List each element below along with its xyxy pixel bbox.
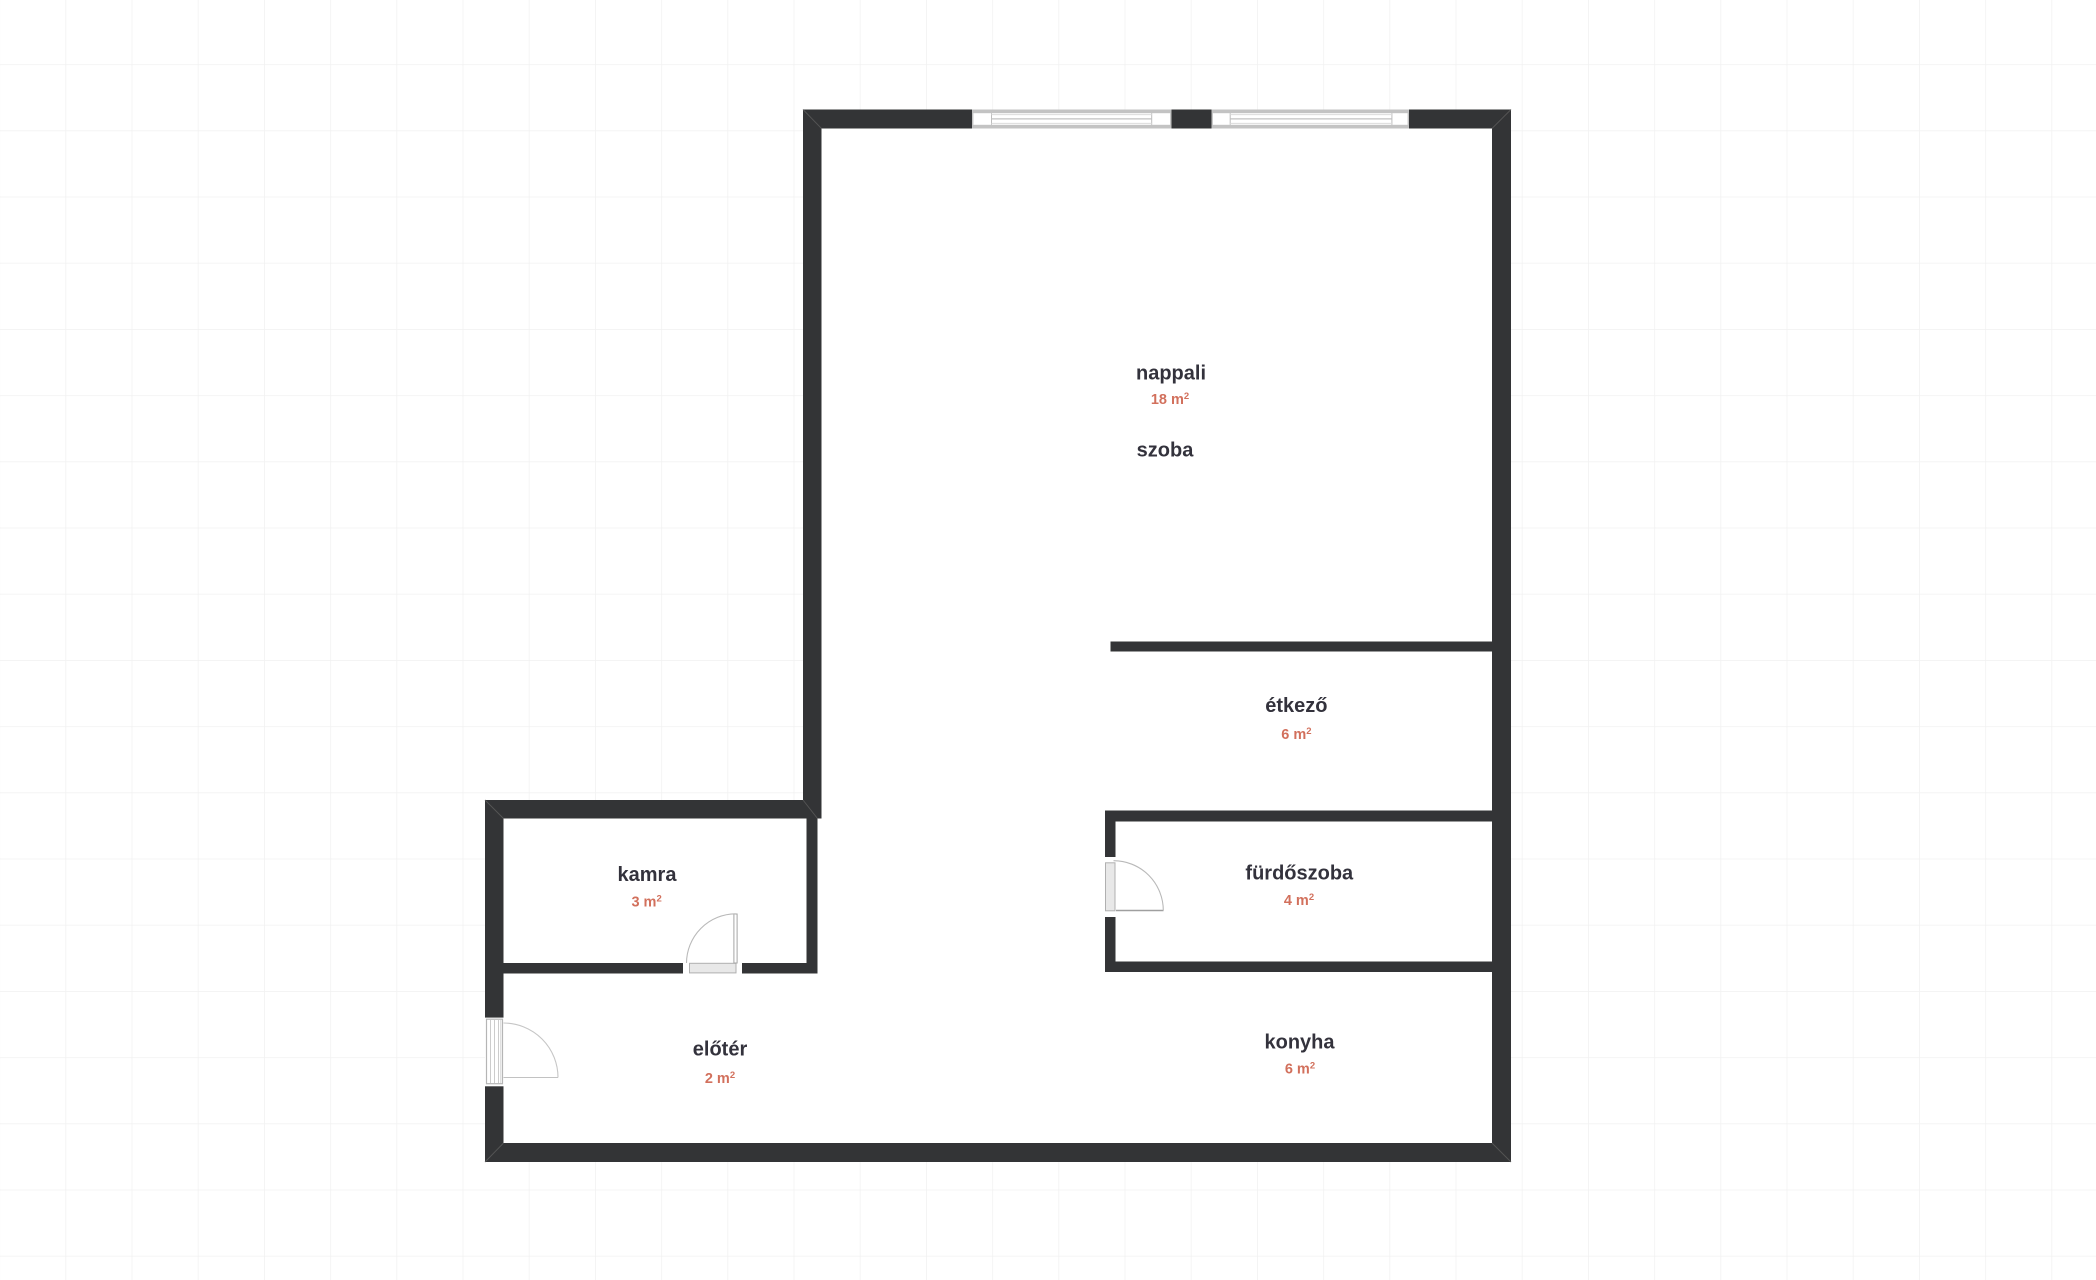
svg-text:konyha: konyha xyxy=(1264,1032,1335,1054)
svg-text:étkező: étkező xyxy=(1265,695,1327,717)
svg-text:szoba: szoba xyxy=(1137,440,1195,462)
svg-text:előtér: előtér xyxy=(693,1039,748,1061)
svg-text:fürdőszoba: fürdőszoba xyxy=(1245,863,1354,885)
svg-text:nappali: nappali xyxy=(1136,363,1206,385)
svg-text:18 m2: 18 m2 xyxy=(1151,391,1189,408)
svg-text:kamra: kamra xyxy=(618,864,678,886)
